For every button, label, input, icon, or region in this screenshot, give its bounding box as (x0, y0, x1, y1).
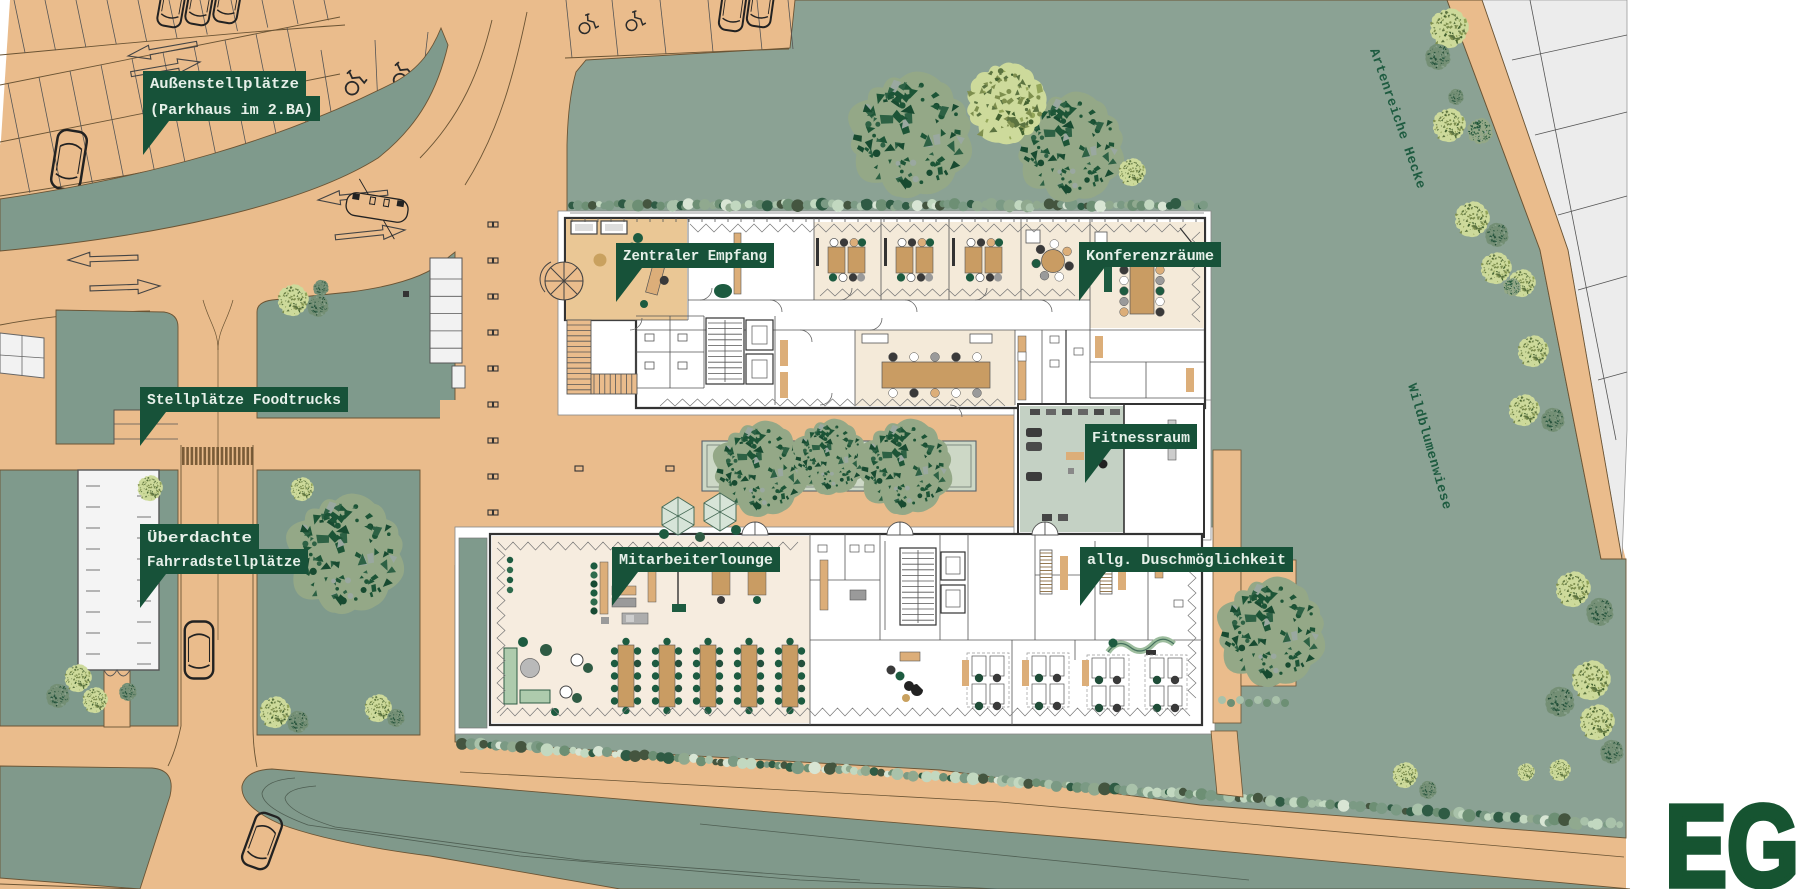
svg-text:Überdachte: Überdachte (147, 530, 252, 547)
svg-text:Fitnessraum: Fitnessraum (1092, 431, 1190, 447)
svg-text:Stellplätze Foodtrucks: Stellplätze Foodtrucks (147, 393, 341, 409)
svg-text:Mitarbeiterlounge: Mitarbeiterlounge (619, 553, 773, 569)
svg-text:allg. Duschmöglichkeit: allg. Duschmöglichkeit (1087, 553, 1286, 569)
svg-text:EG: EG (1665, 782, 1799, 889)
svg-text:Außenstellplätze: Außenstellplätze (150, 77, 299, 93)
svg-text:(Parkhaus im 2.BA): (Parkhaus im 2.BA) (150, 103, 313, 119)
svg-text:Zentraler Empfang: Zentraler Empfang (623, 249, 767, 265)
svg-text:Konferenzräume: Konferenzräume (1086, 249, 1214, 265)
svg-text:Fahrradstellplätze: Fahrradstellplätze (147, 555, 301, 571)
